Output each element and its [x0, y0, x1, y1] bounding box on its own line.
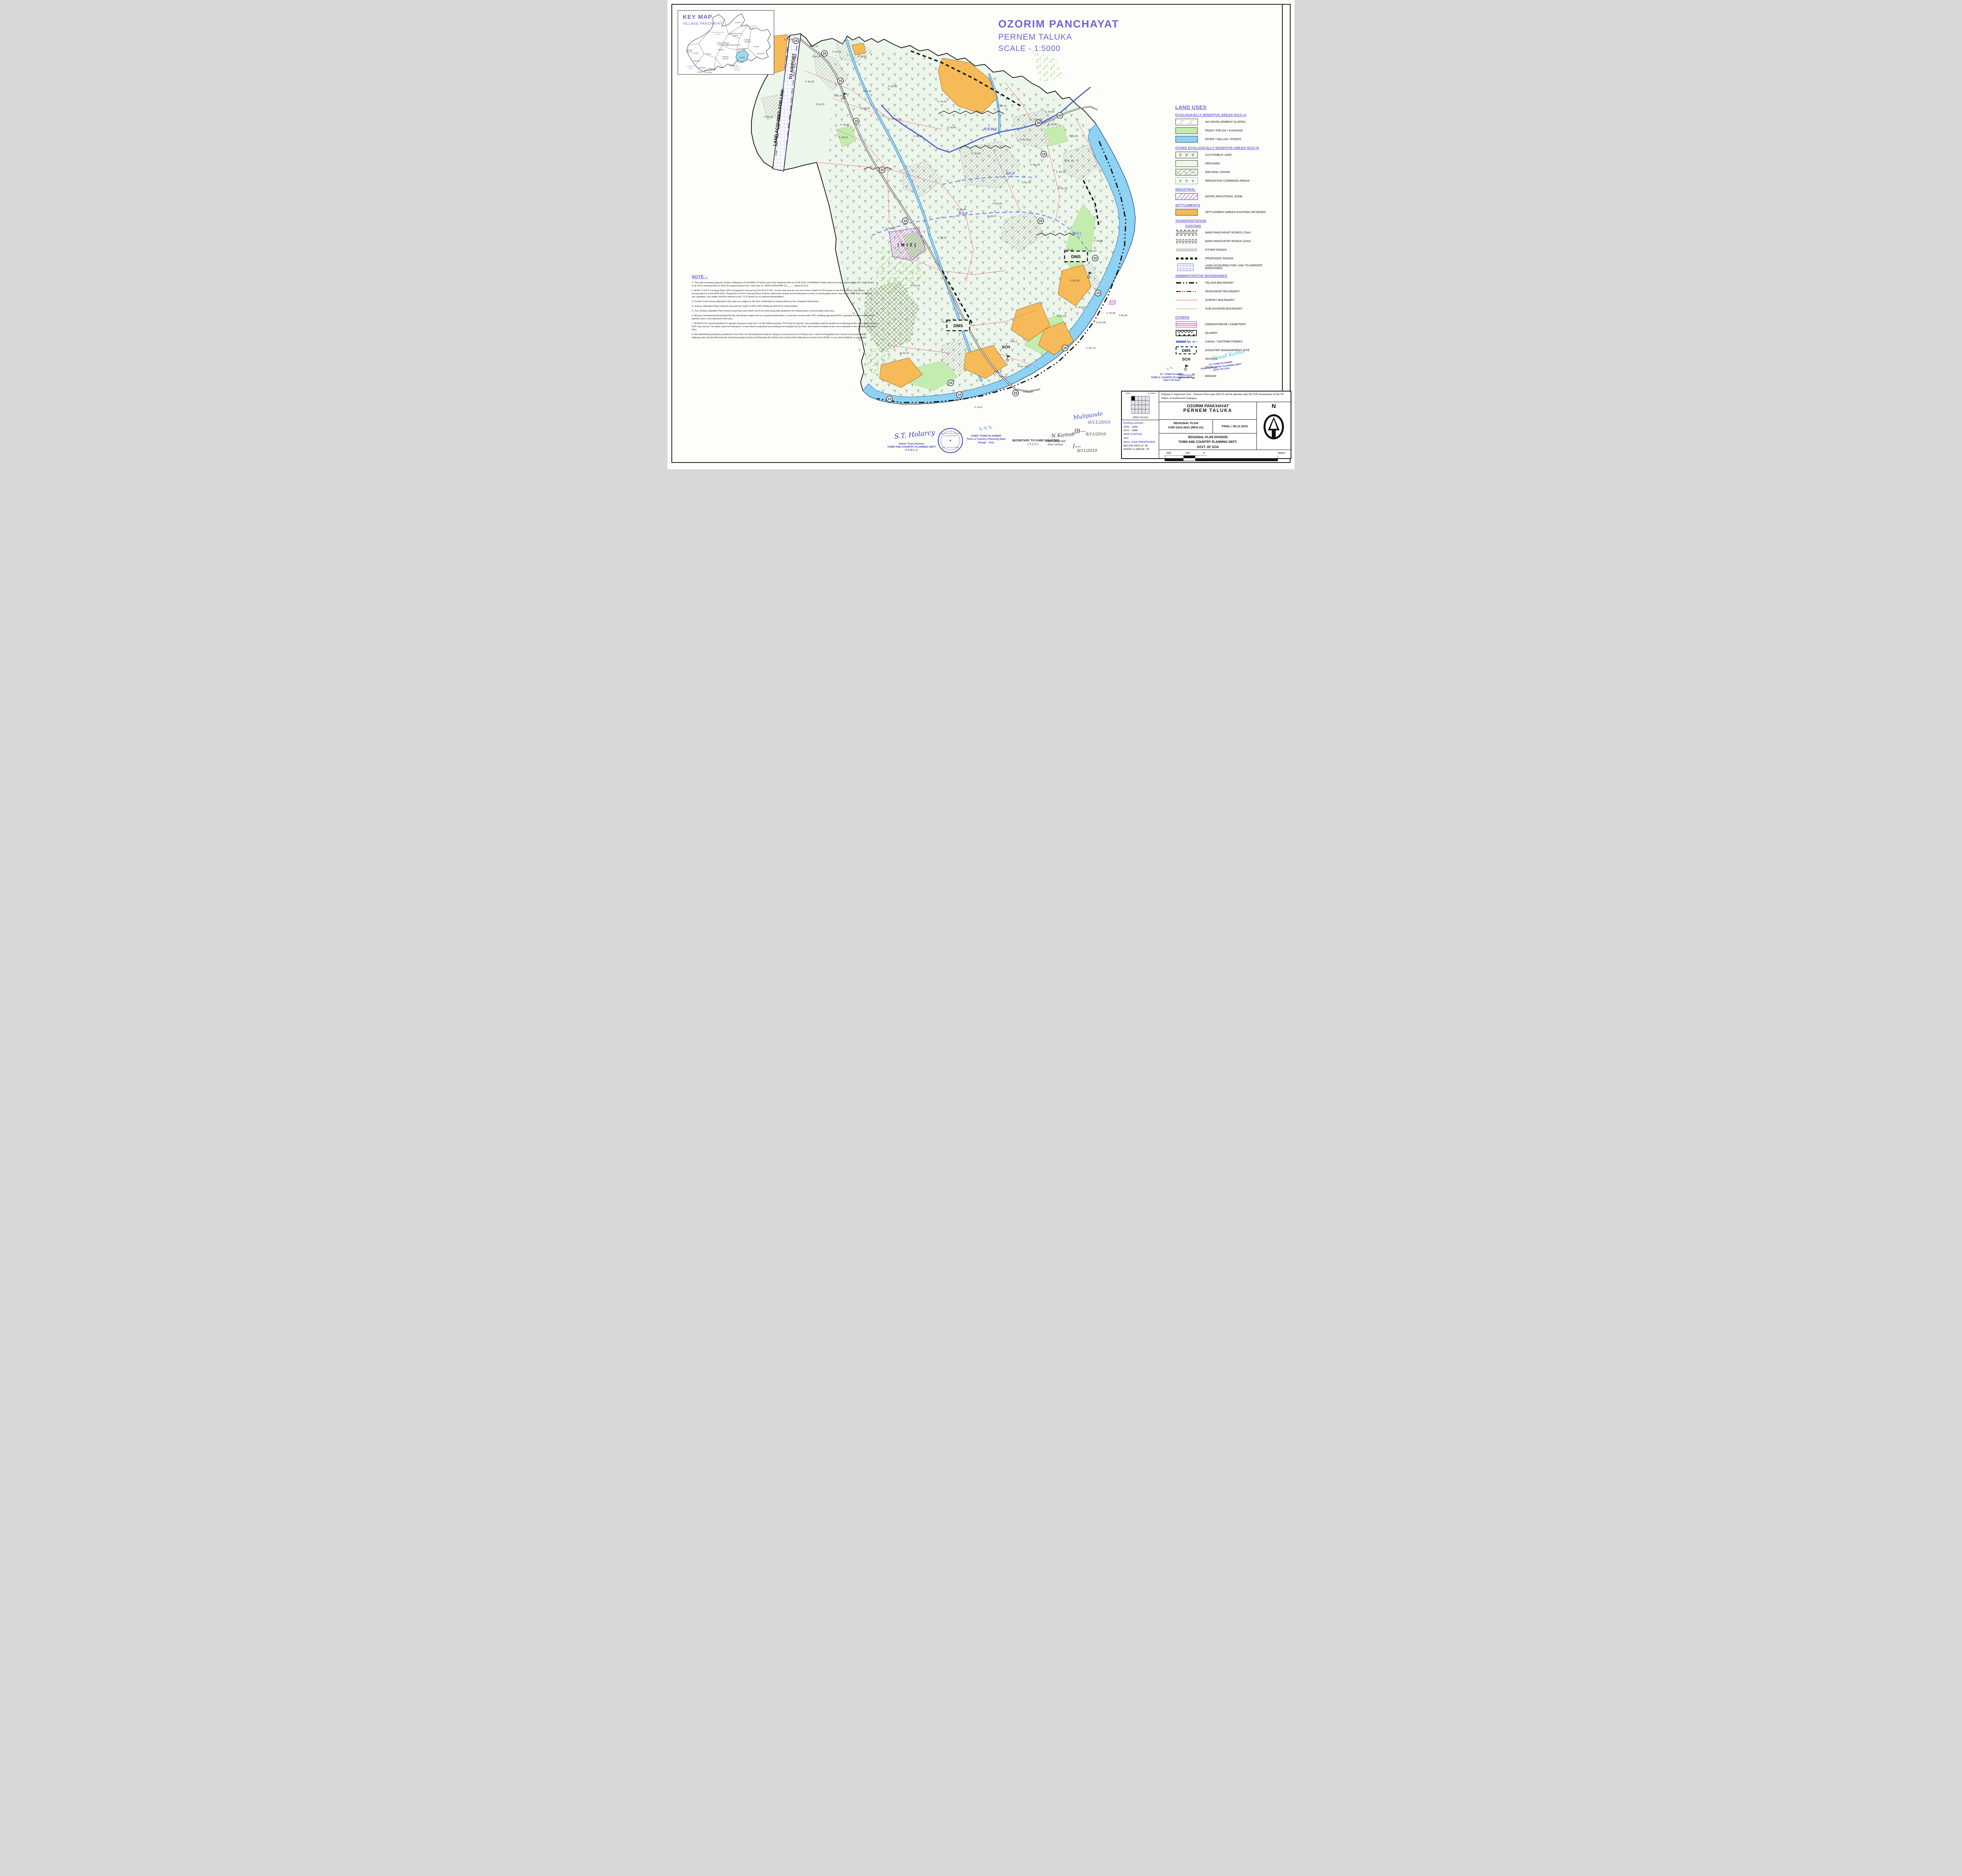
legend-item: NATURAL COVER — [1175, 168, 1282, 176]
legend-swatch — [1175, 329, 1200, 337]
canal-label: B/2 R — [1006, 171, 1015, 175]
key-map-heading: KEY MAP — [683, 14, 712, 20]
stamp-line: TOWN AND COUNTRY PLANNING DEPT. — [887, 446, 936, 449]
svg-text:SCH: SCH — [1182, 357, 1190, 362]
survey-label: S. No.26 — [805, 81, 814, 83]
legend-swatch-quarry — [1175, 329, 1198, 337]
stamp-line: CHIEF MINISTER — [1045, 440, 1065, 443]
survey-label: S. No.32 — [840, 124, 850, 126]
svg-text:U.P DEPARTMENT: U.P DEPARTMENT — [944, 435, 957, 437]
north-label: N — [1257, 403, 1291, 410]
keymap-village-label: MORJIM — [697, 71, 703, 73]
stamp-line: Town & Country Planning Dept — [966, 438, 1006, 441]
legend-swatch: DMS — [1175, 346, 1200, 354]
survey-label: S. No. 56 — [1058, 188, 1068, 190]
legend: LAND USES ECOLOGICALLY SENSITIVE AREAS (… — [1175, 104, 1282, 381]
note-item: 1. This plan showing proposed Surface Ut… — [692, 282, 876, 288]
legend-swatch — [1175, 160, 1200, 168]
survey-label: S.No.53 — [1020, 139, 1029, 141]
miz-label: ( M I Z ) — [897, 243, 916, 248]
road-number: 15 — [1037, 121, 1040, 125]
survey-label: S. No.5 — [974, 406, 983, 409]
far-heading: MAX- FAR PROPOSED — [1123, 440, 1157, 444]
chief-planner-stamp: CHIEF TOWN PLANNERTown & Country Plannin… — [966, 435, 1006, 444]
legend-label-secondary: (PROPOSED) — [1205, 267, 1263, 270]
survey-label: S.No.29 — [810, 46, 818, 48]
legend-swatch — [1175, 208, 1200, 216]
legend-label: OTHER ROADS — [1205, 248, 1227, 252]
legend-swatch — [1175, 305, 1200, 313]
keymap-context-label: STATE — [715, 33, 720, 35]
legend-label: PADDY FIELDS / KHAZANS — [1205, 129, 1243, 133]
road-number: 15 — [904, 219, 907, 223]
keymap-context-label: STATE — [749, 27, 754, 29]
legend-section-heading: ADMINISTRATIVE BOUNDARIES — [1175, 274, 1282, 278]
road-number: 10 — [958, 393, 961, 397]
legend-section-subheading: EXISTING — [1185, 224, 1282, 228]
legend-label: SUB DIVISION BOUNDARY — [1205, 307, 1243, 311]
keymap-village-label: VARCONDA-NAGZOR — [726, 44, 741, 46]
legend-item: OTHER ROADS — [1175, 246, 1282, 254]
area-scale-max: 10,000m² — [1148, 392, 1156, 394]
legend-swatch-natural — [1175, 168, 1198, 176]
legend-section-heading: ECOLOGICALLY SENSITIVE AREAS (ECO-1) — [1175, 113, 1282, 117]
survey-label: S. No.41 — [947, 127, 957, 129]
legend-swatch — [1175, 237, 1200, 245]
survey-label: S. No.110 — [1070, 280, 1080, 282]
area-scale: 400m² 10,000m² AREA SCALE — [1122, 392, 1159, 420]
legend-swatch: SCH — [1175, 355, 1200, 363]
survey-label: S.No.119 — [1057, 315, 1067, 318]
note-item: 4. Surface Utilization Plans shall be re… — [692, 305, 876, 308]
svg-text:✦: ✦ — [949, 439, 952, 443]
survey-label: S.No.99 — [1119, 315, 1127, 317]
legend-label: CANAL / DISTRIBUTORIES — [1205, 340, 1242, 344]
legend-swatch-sch: SCH — [1175, 355, 1198, 363]
survey-label: S. No.33 — [861, 107, 870, 110]
note-item: 5. This Surface Utilization Plan shows b… — [692, 310, 876, 313]
population-2001: 2001 - 1649 — [1123, 425, 1157, 429]
title-line3: SCALE - 1:5000 — [998, 44, 1119, 53]
legend-swatch — [1175, 263, 1200, 271]
division-cell: REGIONAL PLAN DIVISION TOWN AND COUNTRY … — [1159, 433, 1256, 450]
road-number: 15 — [881, 168, 884, 172]
legend-swatch-proposed — [1175, 255, 1198, 262]
survey-label: S.No.3 — [994, 371, 1002, 373]
school-label: SCH — [1002, 345, 1010, 350]
survey-label: S. No.37 — [892, 118, 901, 121]
far-note: Original or Approved Sub - Division Plot… — [1159, 392, 1291, 402]
svg-text:GOVT. OF GOA, PANAJI: GOVT. OF GOA, PANAJI — [942, 446, 959, 448]
survey-label: S. No.60 — [1048, 124, 1058, 126]
road-number: 15 — [1063, 346, 1067, 350]
legend-label: MAIN PANCHAYAT ROADS (15m) — [1205, 231, 1251, 235]
survey-label: S. No.16 — [900, 352, 909, 355]
survey-label: S. No.19 — [911, 285, 920, 287]
note-block: NOTE :- 1. This plan showing proposed Su… — [692, 275, 876, 341]
govt-seal: TOWN & COUNTRY PLANNING U.P DEPARTMENT ✦… — [937, 428, 963, 454]
population-2021: 2021 - 1898 — [1123, 429, 1157, 432]
survey-label: S. No.93 — [1064, 249, 1074, 251]
legend-section-heading: SETTLEMENTS — [1175, 203, 1282, 207]
legend-label: MICRO INDUSTRIAL ZONE — [1205, 195, 1243, 199]
title-block-left: 400m² 10,000m² AREA SCALE POPULATION:- 2… — [1122, 392, 1159, 458]
legend-swatch — [1175, 279, 1200, 287]
plan-sheet: LAND ACQUIRED FOR LINK TO AIRPORT ( M I … — [667, 0, 1295, 469]
survey-label: S.No.4 — [999, 376, 1007, 378]
legend-label: SURVEY BOUNDARY — [1205, 299, 1235, 302]
legend-label: LAND ACQUIRED FOR LINK TO AIRPORT(PROPOS… — [1205, 264, 1263, 271]
survey-label: S.No.27 — [764, 116, 773, 118]
legend-label: NO DEVELOPMENT SLOPES — [1205, 120, 1245, 124]
status-cell: FINAL / 06.11.2010 — [1213, 420, 1256, 433]
road-number: 15 — [794, 39, 798, 43]
area-scale-grid — [1122, 395, 1159, 416]
road-number: 15 — [888, 397, 892, 401]
handwritten-sign-2: JB— — [1074, 428, 1086, 435]
cm-stamp: CHIEF MINISTERGovt. of Goa — [1045, 440, 1065, 446]
survey-label: S.No.21 — [886, 228, 894, 230]
legend-swatch — [1175, 151, 1200, 159]
legend-swatch-settlement — [1175, 208, 1198, 216]
keymap-village-label: CHANDEL- — [744, 39, 751, 41]
keymap-village-label: TAMBOXEM-MOPA- — [729, 33, 742, 35]
survey-label: S. No.112 — [1076, 306, 1086, 309]
dms-label: DMS — [954, 324, 963, 328]
keymap-village-label: TUEM — [719, 67, 723, 68]
legend-swatch-survey — [1175, 296, 1198, 304]
canal-label: R.B.M.C — [984, 127, 997, 131]
keymap-village-label: NAGZOR — [722, 58, 729, 60]
title-block: 400m² 10,000m² AREA SCALE POPULATION:- 2… — [1121, 391, 1291, 459]
keymap-village-label: CASNE-AMBEREM- — [717, 42, 730, 44]
keymap-village-label: UGUEM — [733, 35, 738, 36]
survey-label: S. No.98 — [1106, 312, 1116, 315]
legend-label: MAIN PANCHAYAT ROADS (10m) — [1205, 240, 1251, 243]
survey-label: S. No. 51 — [997, 105, 1007, 107]
road-number: 15 — [839, 79, 842, 83]
survey-label: S.No.59 — [1069, 135, 1078, 138]
legend-swatch-acquired — [1175, 263, 1198, 271]
legend-swatch — [1175, 321, 1200, 328]
legend-swatch-irrigation — [1175, 177, 1198, 185]
legend-swatch-dms: DMS — [1175, 346, 1198, 354]
keymap-village-label: HASAPUR — [744, 41, 751, 43]
keymap-village-label: POROSCADEM — [718, 44, 728, 46]
legend-swatch — [1175, 168, 1200, 176]
keymap-context-label: SEA — [689, 67, 692, 69]
legend-label: QUARRY — [1205, 331, 1218, 335]
legend-section-heading: INDUSTRIAL — [1175, 188, 1282, 191]
legend-swatch — [1175, 127, 1200, 135]
legend-label: TALUKA BOUNDARY — [1205, 281, 1234, 285]
survey-label: S. No.111 — [1086, 347, 1096, 350]
keymap-context-label: TALUKA — [734, 69, 740, 71]
legend-swatch — [1175, 338, 1200, 346]
survey-label: S. No.36 — [888, 86, 897, 88]
survey-label: S. No.46 — [957, 209, 966, 211]
road-number: 15 — [1094, 257, 1097, 260]
note-heading: NOTE :- — [692, 275, 876, 279]
legend-swatch — [1175, 177, 1200, 185]
road-number: 10 — [1058, 114, 1062, 117]
legend-swatch-river — [1175, 135, 1198, 143]
survey-label: S. No.39 — [913, 135, 923, 138]
legend-swatch-road15 — [1175, 229, 1198, 237]
dy-planner-stamp-1: DY. TOWN PLANNERTOWN & COUNTRY PLANNING … — [1151, 373, 1193, 382]
north-cell: N — [1257, 402, 1291, 450]
legend-item: MAIN PANCHAYAT ROADS (15m) — [1175, 229, 1282, 237]
legend-swatch-taluka — [1175, 279, 1198, 287]
legend-swatch-slopes — [1175, 118, 1198, 126]
keymap-village-label: DHARGALIM — [729, 65, 737, 67]
key-map: KEY MAP VILLAGE PANCHAYAT TORXEMTAMBOXEM… — [678, 10, 774, 75]
canal-label: B/3 L — [1073, 231, 1082, 235]
note-item: 7. All NOCs for Land Acquisition for spe… — [692, 322, 876, 332]
legend-swatch-subdiv — [1175, 305, 1198, 313]
crematorium-icon — [1109, 301, 1116, 304]
legend-item: TALUKA BOUNDARY — [1175, 279, 1282, 287]
plan-cell: REGIONAL PLAN FOR GOA-2021 (RPG-21) — [1159, 420, 1213, 433]
secretary-sub: ( T C P ) — [1028, 443, 1038, 446]
legend-section-heading: TRANSPORTATION — [1175, 219, 1282, 223]
map-title: OZORIM PANCHAYAT PERNEM TALUKA SCALE - 1… — [998, 18, 1119, 53]
legend-swatch — [1175, 246, 1200, 254]
survey-label: S.No.109 — [1096, 322, 1106, 324]
population-block: POPULATION:- 2001 - 1649 2021 - 1898 DPR… — [1122, 420, 1159, 458]
handwritten-date-3: 8/11/2010 — [1077, 449, 1097, 453]
legend-swatch-road10 — [1175, 237, 1198, 245]
keymap-village-label: TIRACOL — [686, 51, 693, 53]
keymap-village-label: ARAMBOL — [693, 60, 700, 62]
survey-label: S.No.2 — [1010, 341, 1017, 343]
legend-swatch-crematorium — [1175, 321, 1198, 328]
keymap-village-label: TORXEM — [735, 22, 740, 24]
survey-label: S. No.49 — [971, 153, 981, 155]
keymap-village-label: OZORIM — [739, 57, 745, 58]
legend-label: PROPOSED ROADS — [1205, 257, 1233, 260]
legend-item: SURVEY BOUNDARY — [1175, 296, 1282, 304]
keymap-village-label: ALORNA — [754, 46, 760, 47]
legend-swatch — [1175, 193, 1200, 200]
survey-label: S. No.22 — [839, 137, 848, 139]
legend-label: SETTLEMENT AREAS EXISTING RETAINED — [1205, 211, 1266, 214]
legend-label: RIVER / NALLAS / PONDS — [1205, 138, 1241, 141]
survey-label: S.No. 58 — [1065, 160, 1074, 162]
keymap-village-label: IBRAMPUR — [757, 53, 765, 55]
survey-label: S. No.48 — [993, 203, 1002, 205]
survey-label: S.No.97 — [1088, 250, 1097, 253]
dpr-heading: DPR STATUS — [1123, 432, 1157, 436]
stamp-line: Panaji – Goa — [966, 441, 1006, 444]
road-number: 15 — [855, 120, 858, 123]
keymap-village-label: CHOPDEM — [705, 72, 712, 73]
legend-item: MICRO INDUSTRIAL ZONE — [1175, 193, 1282, 200]
keymap-village-label: AGARWADA- — [704, 70, 713, 71]
legend-label: BRIDGE — [1205, 375, 1216, 378]
keymap-village-label: PERNEM — [718, 49, 724, 51]
survey-label: S.No.24 — [834, 95, 842, 97]
legend-item: CANAL / DISTRIBUTORIES — [1175, 338, 1282, 346]
stamp-line: TOWN & COUNTRY PLANNING DEPT — [1151, 377, 1193, 380]
stamp-line: GOVT OF GOA — [1151, 379, 1193, 382]
legend-swatch-paddy — [1175, 127, 1198, 135]
survey-label: S.No.128 — [1023, 391, 1033, 393]
note-item: 2. All the O.D.P's & Zoning Plans (ZP's)… — [692, 290, 876, 299]
keymap-village-label: VIRNORA- — [722, 56, 729, 58]
note-item: 6. All past commitments/developments lik… — [692, 315, 876, 321]
survey-label: S. No.17 — [942, 321, 952, 323]
road-number: 15 — [1096, 291, 1100, 295]
stamp-line: P A N A J I — [887, 449, 936, 452]
senior-planner-stamp: Senior Town Planner,TOWN AND COUNTRY PLA… — [887, 443, 936, 452]
survey-label: S.No. 129 — [1018, 366, 1028, 368]
road-number: 15 — [949, 381, 953, 385]
legend-item: MAIN PANCHAYAT ROADS (10m) — [1175, 237, 1282, 245]
title-line1: OZORIM PANCHAYAT — [998, 18, 1119, 30]
road-number: 15 — [1042, 153, 1046, 156]
legend-item: IRRIGATION COMMAND AREAS — [1175, 177, 1282, 185]
survey-label: S. No.30 — [784, 39, 793, 41]
legend-item: NO DEVELOPMENT SLOPES — [1175, 118, 1282, 126]
legend-label: CULTIVABLE LAND — [1205, 153, 1232, 157]
keymap-village-label: MANDREM — [698, 67, 706, 69]
legend-swatch — [1175, 364, 1200, 372]
north-arrow-icon — [1257, 410, 1291, 444]
survey-label: S. No. 57 — [1056, 171, 1066, 173]
dpr-value: VP2 — [1123, 437, 1157, 440]
area-scale-min: 400m² — [1126, 392, 1131, 394]
stamp-line: Govt. of Goa — [1045, 443, 1065, 446]
legend-label: IRRIGATION COMMAND AREAS — [1205, 179, 1249, 183]
key-map-subheading: VILLAGE PANCHAYAT — [683, 22, 722, 25]
road-number: 15 — [1039, 219, 1043, 223]
legend-item: PROPOSED ROADS — [1175, 255, 1282, 262]
legend-item: PANCHAYAT BOUNDARY — [1175, 288, 1282, 295]
handwritten-date-1: 8/11/2010 — [1088, 420, 1110, 425]
road-number: 15 — [1014, 392, 1017, 395]
scale-bar: 250 100 0 500m — [1159, 450, 1291, 458]
canal-label: B/3 R — [959, 211, 968, 215]
legend-item: QUARRY — [1175, 329, 1282, 337]
survey-label: S. No.96 — [1094, 240, 1103, 242]
keymap-village-label: CORGAO — [705, 53, 711, 55]
keymap-village-label: QUERIM- — [686, 49, 693, 51]
handwritten-date-2: 8/11/2010 — [1086, 432, 1106, 437]
stamp-line: DY. TOWN PLANNER — [1151, 373, 1193, 377]
survey-label: S. No.40 — [937, 101, 947, 103]
survey-label: S. No.61 — [1045, 111, 1054, 113]
legend-item: SUB DIVISION BOUNDARY — [1175, 305, 1282, 313]
legend-swatch — [1175, 135, 1200, 143]
legend-item: CREMATORIUM / CEMETERY — [1175, 321, 1282, 328]
legend-item: ORCHARD — [1175, 160, 1282, 168]
dms-label: DMS — [1071, 255, 1081, 259]
note-item: 8. Not withstanding anything contained i… — [692, 333, 876, 340]
legend-label: NATURAL COVER — [1205, 171, 1230, 174]
legend-swatch — [1175, 229, 1200, 237]
legend-swatch — [1175, 118, 1200, 126]
legend-item: PADDY FIELDS / KHAZANS — [1175, 127, 1282, 135]
margin-divider — [1282, 4, 1283, 391]
population-heading: POPULATION:- — [1123, 421, 1157, 425]
legend-section-heading: OTHER ECOLOGICALLY SENSITIVE AREAS (ECO-… — [1175, 146, 1282, 150]
survey-label: S.No. 55 — [1022, 182, 1031, 184]
legend-swatch-orchard — [1175, 160, 1198, 168]
legend-item: RIVER / NALLAS / PONDS — [1175, 135, 1282, 143]
legend-swatch-otherroad — [1175, 246, 1198, 254]
legend-swatch — [1175, 296, 1200, 304]
legend-item: CULTIVABLE LAND — [1175, 151, 1282, 159]
title-block-main: Original or Approved Sub - Division Plot… — [1159, 392, 1291, 458]
far-row-0: BELOW 4000 m² 60 — [1123, 444, 1157, 448]
survey-label: S. No.47 — [987, 215, 997, 218]
legend-label: PANCHAYAT BOUNDARY — [1205, 290, 1240, 293]
legend-item: LAND ACQUIRED FOR LINK TO AIRPORT(PROPOS… — [1175, 263, 1282, 271]
legend-swatch — [1175, 288, 1200, 295]
road-number: 15 — [823, 52, 826, 55]
legend-swatch-cultivable — [1175, 151, 1198, 159]
survey-label: S.No.25 — [816, 104, 824, 106]
survey-label: S.No.28 — [812, 56, 821, 58]
legend-item: SETTLEMENT AREAS EXISTING RETAINED — [1175, 208, 1282, 216]
survey-label: S. No. 54 — [1030, 164, 1040, 166]
survey-label: S.No.34 — [863, 90, 872, 93]
svg-text:TOWN & COUNTRY PLANNING: TOWN & COUNTRY PLANNING — [939, 432, 962, 434]
far-row-1: 4000m² & ABOVE 50 — [1123, 448, 1157, 451]
scale-bar-graphic — [1165, 455, 1282, 463]
legend-swatch-temple — [1175, 364, 1198, 372]
area-scale-caption: AREA SCALE — [1122, 416, 1159, 419]
keymap-village-label: PALIEM — [693, 53, 698, 54]
legend-label: ORCHARD — [1205, 162, 1220, 166]
legend-swatch-panchayat — [1175, 288, 1198, 295]
note-item: 3. Private Forest areas indicated in thi… — [692, 301, 876, 304]
keymap-village-label: CASARVANE — [738, 48, 746, 50]
stamp-line: CHIEF TOWN PLANNER — [966, 435, 1006, 438]
stamp-line: Senior Town Planner, — [887, 443, 936, 446]
legend-swatch-miz — [1175, 193, 1198, 200]
svg-text:DMS: DMS — [1182, 349, 1191, 353]
legend-swatch — [1175, 255, 1200, 262]
survey-label: S. No.20 — [937, 237, 947, 239]
legend-label: CREMATORIUM / CEMETERY — [1205, 323, 1246, 326]
survey-label: S. No.31 — [832, 51, 842, 53]
title-block-name: OZORIM PANCHAYAT PERNEM TALUKA — [1159, 402, 1256, 420]
legend-heading: LAND USES — [1175, 104, 1282, 110]
title-line2: PERNEM TALUKA — [998, 33, 1119, 42]
legend-section-heading: OTHERS — [1175, 315, 1282, 319]
legend-swatch-canal — [1175, 338, 1198, 346]
survey-label: S. No.35 — [857, 56, 867, 58]
